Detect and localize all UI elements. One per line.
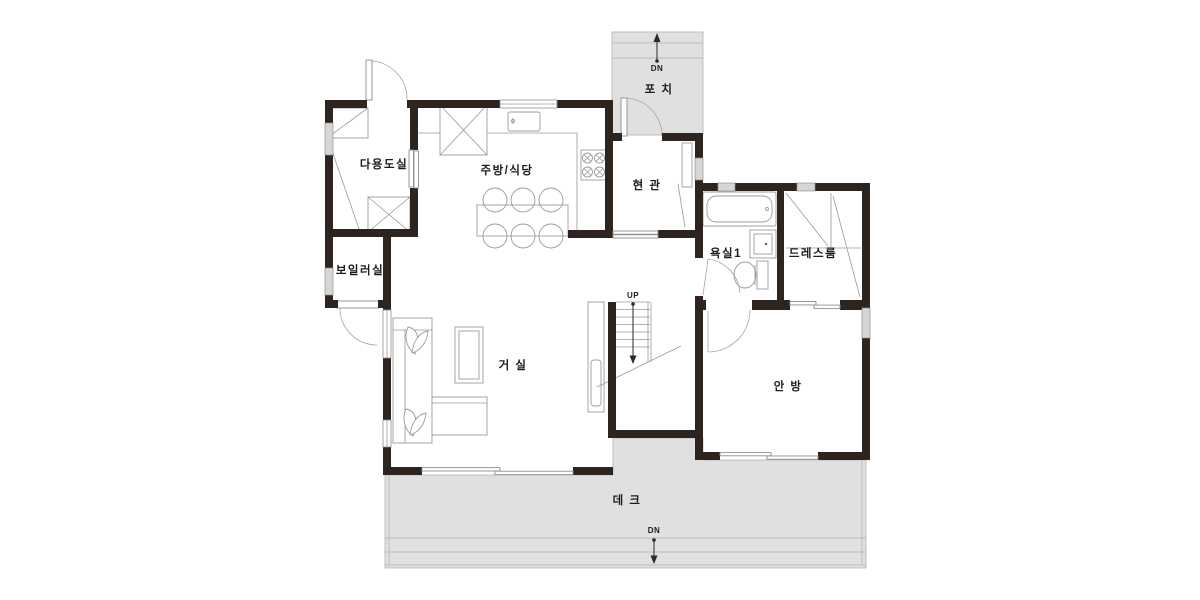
floor-plan-page: DN DN: [0, 0, 1200, 600]
bathroom-sink: [750, 230, 776, 258]
tv-cabinet: [588, 302, 604, 412]
entrance-window: [695, 158, 703, 180]
chair: [511, 188, 535, 212]
stove: [581, 150, 606, 180]
room-label-kitchen: 주방/식당: [480, 163, 533, 177]
living-window-2: [383, 420, 391, 447]
washer: [368, 197, 410, 232]
porch-dn-label: DN: [651, 64, 664, 73]
room-label-living: 거 실: [499, 358, 528, 372]
room-label-utility: 다용도실: [360, 157, 408, 171]
chair: [483, 188, 507, 212]
living-fixtures: [393, 302, 604, 443]
room-label-entrance: 현 관: [633, 178, 662, 192]
boiler-window: [325, 268, 333, 295]
entrance-fixtures: [678, 143, 692, 227]
master-sliding-window: [720, 453, 818, 460]
master-bedroom-door: [708, 310, 750, 352]
refrigerator: [440, 105, 487, 155]
dressroom-sliding-door: [790, 302, 840, 309]
boiler-door: [337, 301, 379, 345]
room-label-bathroom1: 욕실1: [710, 246, 742, 260]
bathroom-window: [718, 183, 735, 191]
room-label-dressroom: 드레스룸: [789, 246, 837, 260]
dining-set: [477, 188, 568, 248]
bathtub: [703, 192, 776, 226]
kitchen-sink: [508, 112, 540, 131]
utility-window: [325, 123, 333, 155]
dining-table: [477, 205, 568, 236]
utility-sliding-door: [409, 150, 419, 188]
deck-dn-label: DN: [648, 526, 661, 535]
living-window-1: [383, 310, 391, 358]
room-label-boiler: 보일러실: [336, 263, 384, 277]
toilet: [734, 261, 768, 289]
bathroom-fixtures: [703, 192, 776, 289]
floor-plan-canvas: DN DN: [0, 0, 1200, 600]
room-label-deck: 데 크: [613, 493, 642, 507]
shoe-cabinet: [682, 143, 692, 187]
utility-exterior-door: [366, 60, 407, 100]
dressroom-window: [797, 183, 815, 191]
kitchen-window: [500, 100, 557, 108]
coffee-table: [455, 327, 483, 383]
chair: [539, 188, 563, 212]
room-label-master: 안 방: [774, 379, 803, 393]
entrance-hall-sliding-door: [613, 231, 658, 238]
master-side-window: [862, 308, 870, 338]
stair-up-label: UP: [627, 291, 639, 300]
dressroom-wardrobe: [786, 193, 861, 297]
living-sliding-door: [422, 468, 573, 475]
room-label-porch: 포 치: [645, 82, 674, 96]
